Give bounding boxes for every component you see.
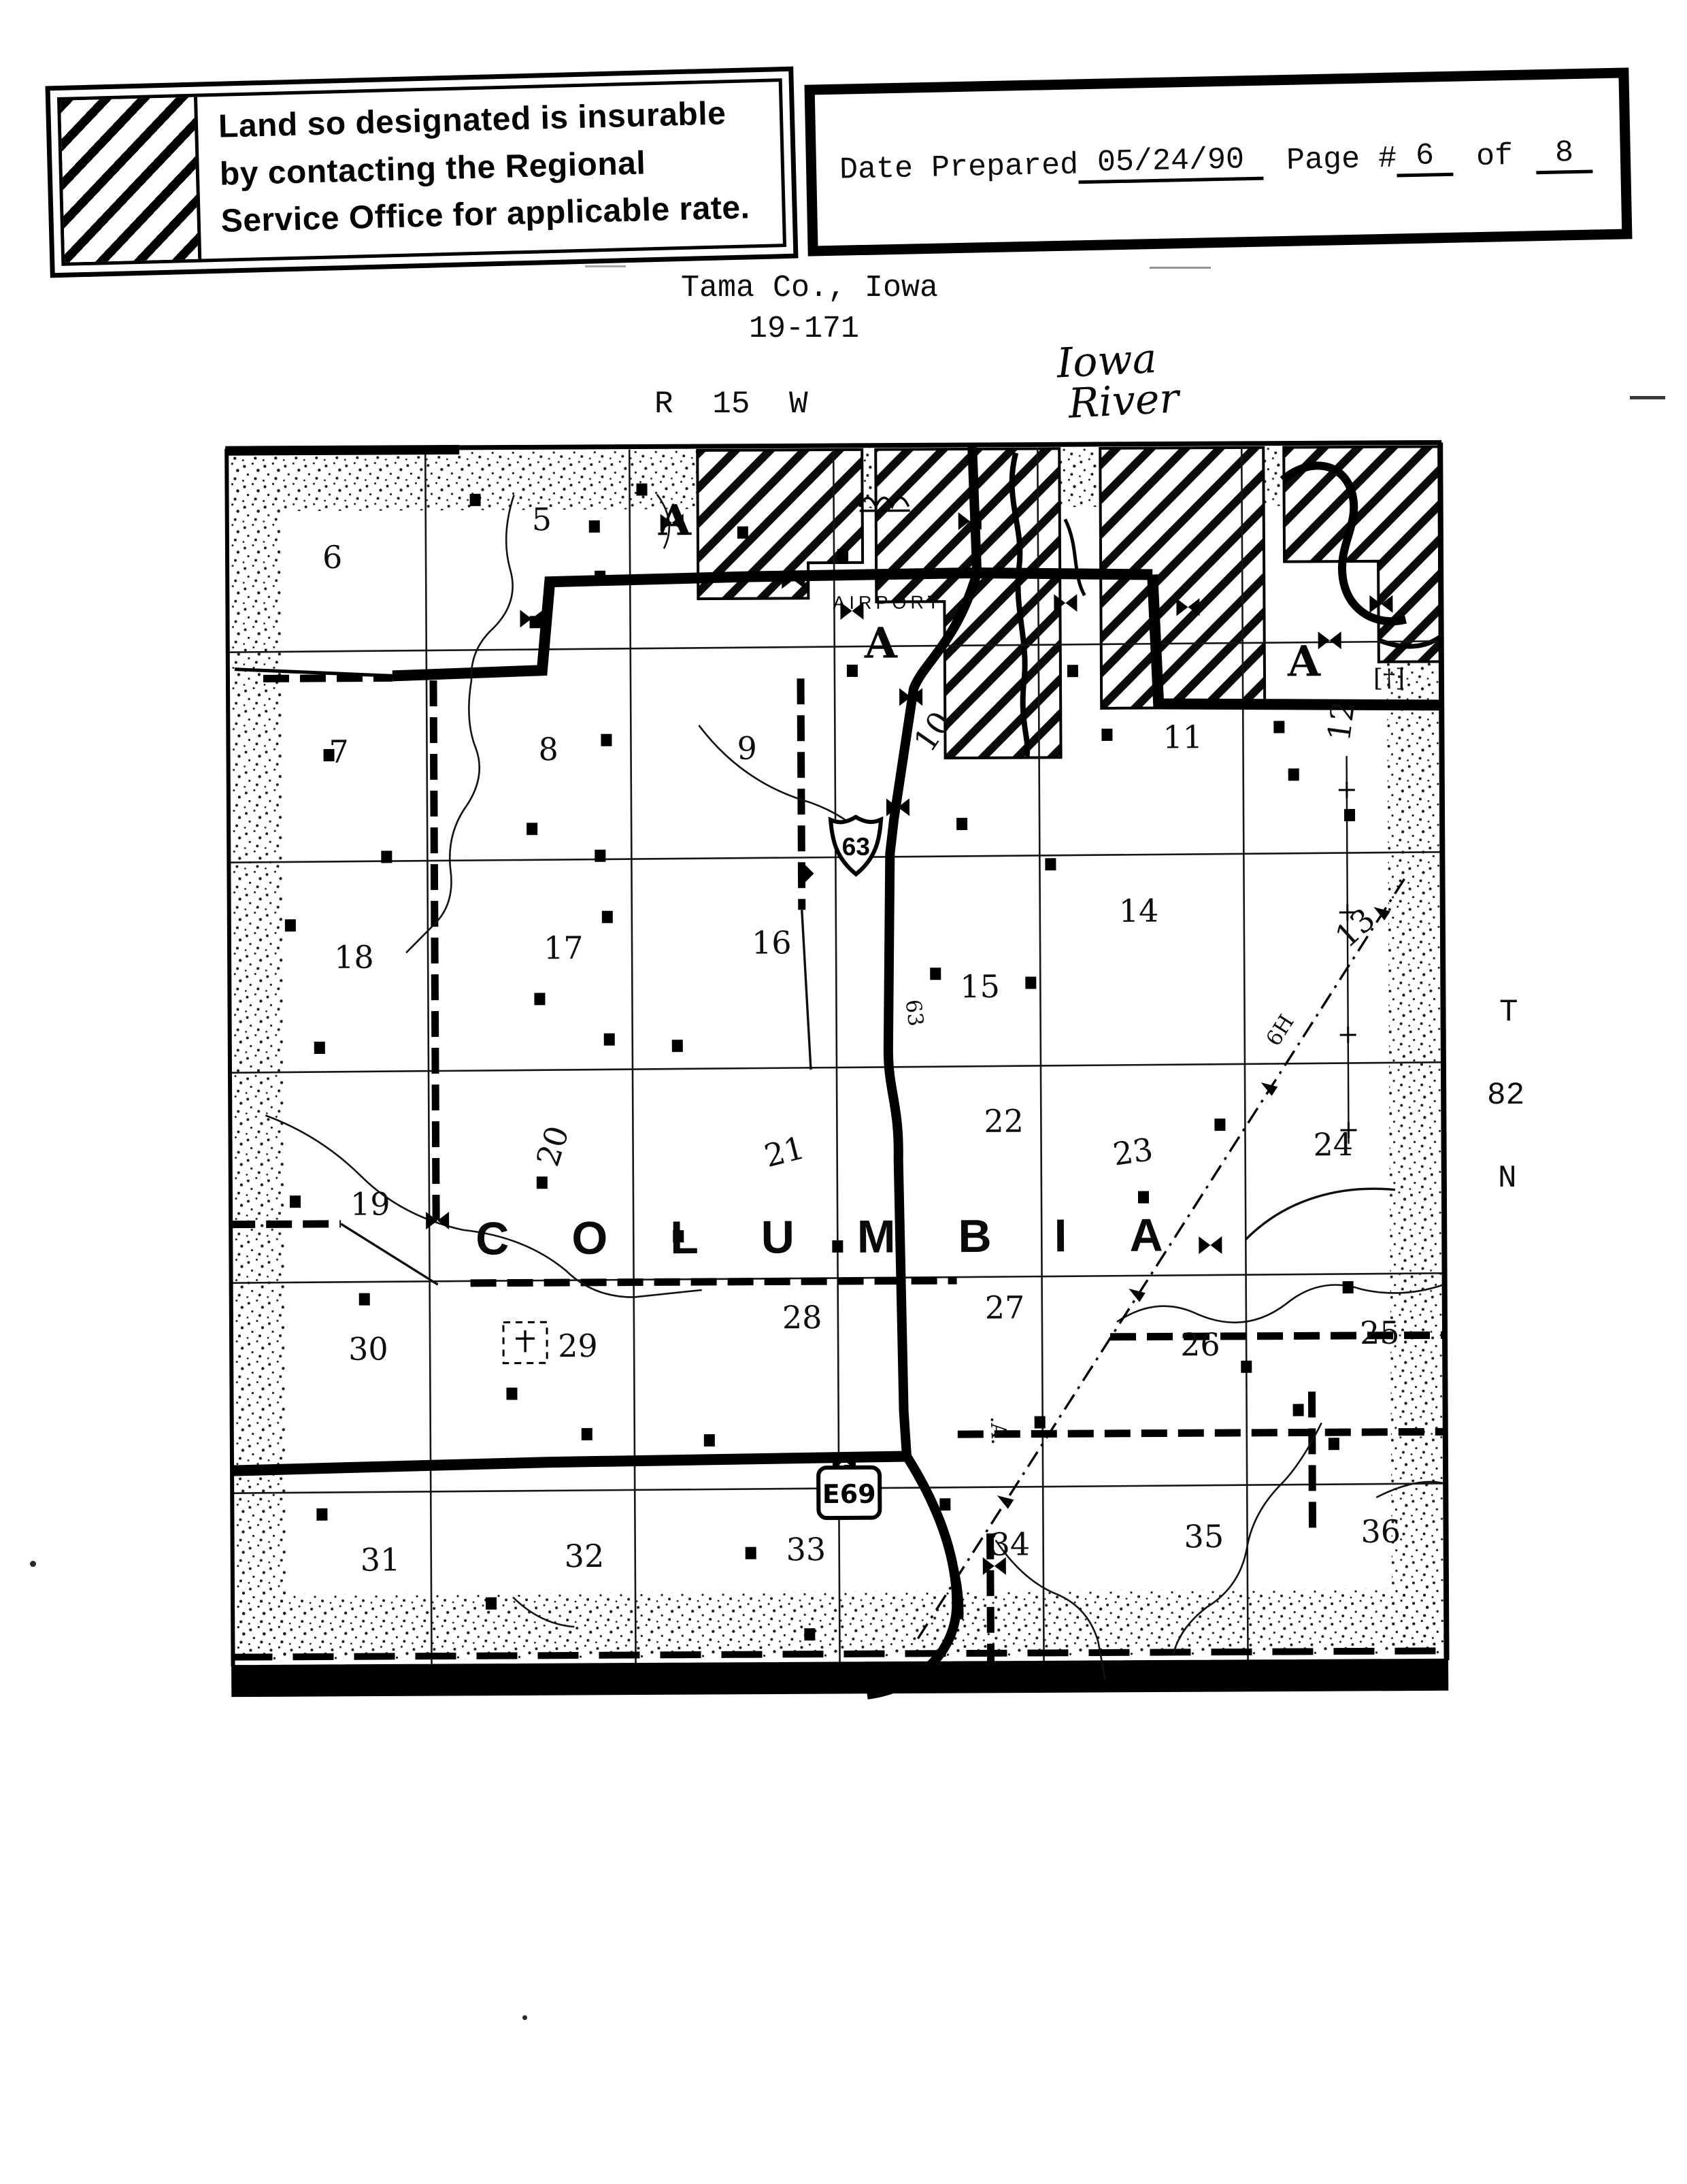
structure-square bbox=[604, 1033, 615, 1046]
road bbox=[433, 680, 436, 1220]
structure-square bbox=[537, 1176, 548, 1189]
insurable-note-inner: Land so designated is insurable by conta… bbox=[57, 78, 786, 266]
structure-square bbox=[602, 911, 613, 923]
structure-square bbox=[534, 993, 545, 1005]
section-label-23: 23 bbox=[1111, 1131, 1156, 1173]
iowa-river-label: Iowa River bbox=[1056, 337, 1180, 425]
scan-dash bbox=[585, 265, 626, 267]
structure-square bbox=[470, 494, 481, 506]
section-label-20: 20 bbox=[529, 1121, 576, 1170]
e69-sign: E69 bbox=[818, 1468, 880, 1518]
e69-sign-text: E69 bbox=[822, 1479, 876, 1509]
insurable-note-box: Land so designated is insurable by conta… bbox=[45, 67, 798, 278]
structure-square bbox=[672, 1040, 683, 1052]
section-label-13: 13 bbox=[1328, 901, 1382, 955]
structure-square bbox=[1343, 1281, 1354, 1293]
structure-square bbox=[1067, 665, 1078, 677]
structure-square bbox=[746, 1547, 756, 1559]
township-82: 82 bbox=[1487, 1078, 1524, 1113]
section-label-8: 8 bbox=[538, 731, 558, 767]
structure-square bbox=[847, 665, 858, 677]
structure-square bbox=[506, 1387, 517, 1400]
cemetery-symbol bbox=[503, 1322, 547, 1363]
hatched-legend-swatch bbox=[61, 97, 201, 263]
section-label-21: 21 bbox=[761, 1129, 808, 1174]
section-label-24: 24 bbox=[1313, 1126, 1353, 1163]
scan-speck bbox=[522, 2015, 527, 2020]
section-label-34: 34 bbox=[990, 1526, 1031, 1563]
structure-square bbox=[601, 734, 612, 746]
insurable-note-text: Land so designated is insurable by conta… bbox=[197, 82, 783, 259]
airport-label: AIRPORT bbox=[833, 592, 943, 613]
road bbox=[229, 1224, 341, 1225]
structure-square bbox=[1241, 1361, 1252, 1373]
structure-square bbox=[704, 1434, 715, 1446]
road bbox=[958, 1432, 1446, 1434]
scan-dash bbox=[1150, 267, 1211, 269]
zone-a-label: A bbox=[864, 618, 898, 668]
section-label-9: 9 bbox=[737, 730, 757, 767]
structure-square bbox=[595, 571, 605, 583]
road bbox=[263, 678, 392, 678]
iowa-river-line2: River bbox=[1067, 378, 1180, 424]
structure-square bbox=[1273, 721, 1284, 733]
township-name-label: COLUMBIA bbox=[475, 1209, 1226, 1265]
township-t: T bbox=[1499, 995, 1518, 1030]
section-label-5: 5 bbox=[532, 501, 552, 537]
section-label-31: 31 bbox=[361, 1541, 401, 1578]
map-number: 19-171 bbox=[749, 312, 859, 346]
structure-square bbox=[837, 549, 848, 561]
zone-a-label: A bbox=[1287, 636, 1321, 686]
section-label-35: 35 bbox=[1184, 1518, 1224, 1555]
structure-square bbox=[1101, 729, 1112, 741]
road-a-label: .A. bbox=[986, 1416, 1012, 1446]
structure-square bbox=[1025, 976, 1036, 989]
structure-square bbox=[290, 1195, 301, 1208]
section-label-16: 16 bbox=[752, 924, 792, 961]
section-label-27: 27 bbox=[985, 1289, 1025, 1326]
structure-square bbox=[1344, 809, 1355, 821]
section-label-15: 15 bbox=[960, 968, 1000, 1005]
page-label: Page # bbox=[1286, 141, 1397, 178]
section-label-36: 36 bbox=[1360, 1513, 1401, 1550]
section-label-7: 7 bbox=[329, 733, 349, 770]
township-n: N bbox=[1498, 1161, 1517, 1196]
bowtie-marker bbox=[1318, 631, 1341, 649]
county-title: Tama Co., Iowa bbox=[681, 271, 938, 305]
date-prepared-value: 05/24/90 bbox=[1078, 142, 1264, 184]
structure-square bbox=[595, 850, 605, 862]
road-63-label: 63 bbox=[901, 998, 929, 1028]
structure-square bbox=[527, 823, 537, 835]
section-label-32: 32 bbox=[565, 1538, 605, 1574]
structure-square bbox=[381, 850, 392, 863]
line-6h-label: 6H bbox=[1261, 1010, 1299, 1050]
structure-square bbox=[1288, 768, 1299, 780]
structure-square bbox=[529, 616, 540, 628]
section-label-17: 17 bbox=[544, 929, 584, 966]
zone-a-label: A bbox=[658, 495, 692, 545]
section-label-25: 25 bbox=[1360, 1314, 1400, 1351]
section-label-19: 19 bbox=[350, 1185, 390, 1222]
section-label-22: 22 bbox=[984, 1103, 1024, 1140]
page-number: 6 bbox=[1396, 138, 1453, 178]
section-label-18: 18 bbox=[334, 939, 374, 976]
structure-square bbox=[582, 1428, 592, 1440]
structure-square bbox=[359, 1293, 370, 1306]
structure-square bbox=[1293, 1404, 1304, 1416]
e69-road bbox=[232, 1456, 907, 1470]
structure-square bbox=[930, 967, 941, 980]
structure-square bbox=[589, 520, 600, 533]
line-6h-arrows bbox=[991, 902, 1393, 1509]
section-label-26: 26 bbox=[1180, 1326, 1220, 1363]
structure-square bbox=[956, 818, 967, 830]
structure-square bbox=[804, 1628, 815, 1640]
structure-square bbox=[1035, 1416, 1046, 1428]
township-map: [†] COLUMBIA A A A AIRPORT 63 .A. 6H 63 … bbox=[221, 435, 1452, 1706]
of-label: of bbox=[1476, 138, 1514, 173]
section-label-12: 12 bbox=[1320, 699, 1362, 743]
structure-square bbox=[1329, 1438, 1339, 1450]
structure-square bbox=[1138, 1191, 1149, 1204]
structure-square bbox=[939, 1498, 950, 1510]
scan-speck bbox=[30, 1561, 36, 1567]
hatch-zone bbox=[1284, 446, 1440, 662]
structure-square bbox=[737, 527, 748, 539]
section-label-28: 28 bbox=[782, 1299, 822, 1336]
structure-square bbox=[636, 483, 647, 495]
structure-square bbox=[314, 1042, 325, 1054]
page-total: 8 bbox=[1535, 135, 1592, 174]
section-label-29: 29 bbox=[558, 1327, 598, 1364]
structure-square bbox=[316, 1508, 327, 1521]
section-label-30: 30 bbox=[348, 1330, 388, 1367]
section-label-6: 6 bbox=[322, 539, 343, 576]
structure-square bbox=[486, 1598, 497, 1610]
section-label-11: 11 bbox=[1163, 718, 1203, 755]
structure-square bbox=[1045, 858, 1056, 870]
range-label: R 15 W bbox=[654, 386, 808, 422]
date-prepared-label: Date Prepared bbox=[839, 148, 1079, 187]
date-prepared-box: Date Prepared 05/24/90 Page # 6 of 8 bbox=[804, 67, 1632, 256]
section-label-33: 33 bbox=[786, 1531, 826, 1568]
scanned-plat-page: Land so designated is insurable by conta… bbox=[0, 0, 1687, 2184]
church-symbol: [†] bbox=[1373, 665, 1405, 693]
us-63-shield-number: 63 bbox=[842, 833, 870, 861]
structure-square bbox=[1214, 1119, 1225, 1131]
scan-dash bbox=[1630, 396, 1665, 399]
us-63-shield: 63 bbox=[831, 817, 881, 874]
structure-square bbox=[285, 919, 296, 931]
road bbox=[1312, 1391, 1312, 1532]
section-label-14: 14 bbox=[1119, 893, 1159, 929]
